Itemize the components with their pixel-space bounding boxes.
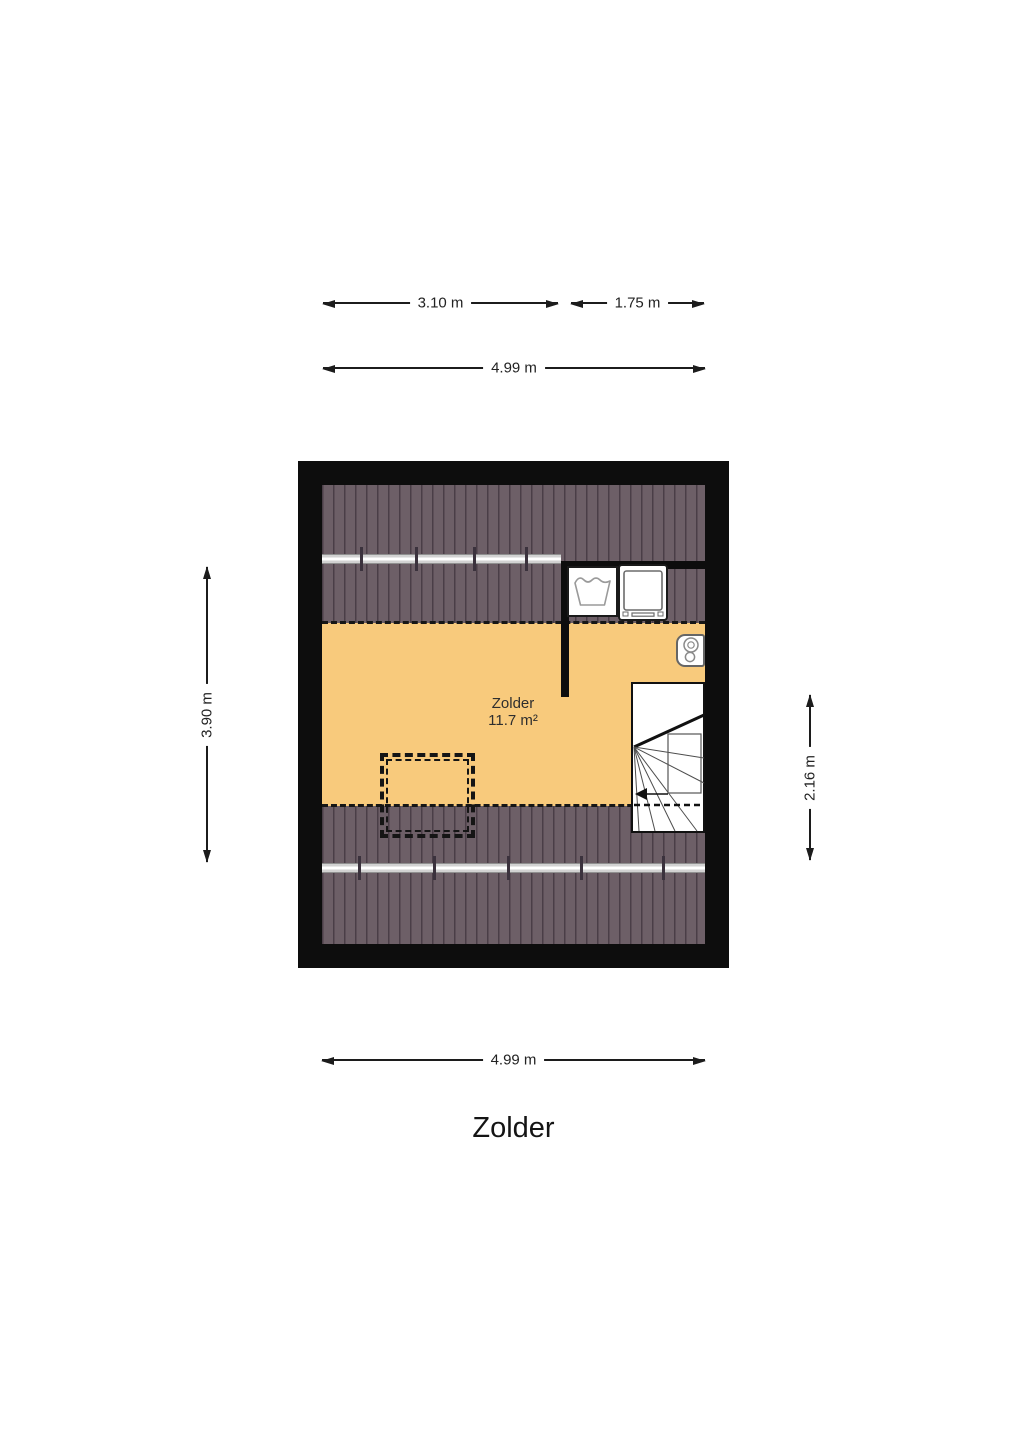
dimension-label: 4.99 m: [483, 1052, 545, 1069]
dimension-label: 2.16 m: [802, 747, 819, 809]
dimension-label: 3.90 m: [199, 684, 216, 746]
boiler-icon: [676, 634, 705, 667]
washing-machine-icon: [618, 564, 668, 621]
dimension-label: 4.99 m: [483, 360, 545, 377]
dimension-right-stair: 2.16 m: [809, 695, 811, 860]
beam-tick: [360, 547, 363, 571]
arrow-right-icon: [693, 1057, 706, 1065]
arrow-left-icon: [570, 300, 583, 308]
beam-tick: [525, 547, 528, 571]
winder-staircase: [631, 682, 705, 833]
dimension-bottom-total: 4.99 m: [322, 1059, 705, 1061]
roof-window-dashed-outline: [380, 753, 475, 838]
arrow-right-icon: [546, 300, 559, 308]
dimension-top-total: 4.99 m: [323, 367, 705, 369]
arrow-left-icon: [322, 365, 335, 373]
arrow-up-icon: [806, 694, 814, 707]
room-label: Zolder 11.7 m²: [423, 695, 603, 729]
arrow-right-icon: [693, 365, 706, 373]
floor-title: Zolder: [298, 1112, 729, 1145]
roof-window-inner-line: [386, 759, 469, 832]
beam-tick: [415, 547, 418, 571]
beam-tick: [358, 856, 361, 880]
attic-room: Zolder 11.7 m²: [322, 485, 705, 944]
room-name: Zolder: [423, 695, 603, 712]
beam-tick: [507, 856, 510, 880]
arrow-down-icon: [203, 850, 211, 863]
beam-tick: [433, 856, 436, 880]
arrow-up-icon: [203, 566, 211, 579]
beam-tick: [473, 547, 476, 571]
attic-floorplan: Zolder 11.7 m²: [298, 461, 729, 968]
arrow-right-icon: [692, 300, 705, 308]
purlin-beam-bottom: [322, 863, 705, 873]
purlin-beam-top: [322, 554, 561, 564]
dimension-top-left: 3.10 m: [323, 302, 558, 304]
dimension-label: 1.75 m: [607, 295, 669, 312]
dimension-top-right: 1.75 m: [571, 302, 704, 304]
floorplan-page: { "floor_title": "Zolder", "room_label":…: [0, 0, 1018, 1440]
laundry-tub-icon: [567, 566, 618, 617]
beam-tick: [662, 856, 665, 880]
room-area: 11.7 m²: [423, 712, 603, 729]
arrow-left-icon: [321, 1057, 334, 1065]
arrow-down-icon: [806, 848, 814, 861]
beam-tick: [580, 856, 583, 880]
arrow-left-icon: [322, 300, 335, 308]
dimension-label: 3.10 m: [410, 295, 472, 312]
dimension-left-height: 3.90 m: [206, 567, 208, 862]
